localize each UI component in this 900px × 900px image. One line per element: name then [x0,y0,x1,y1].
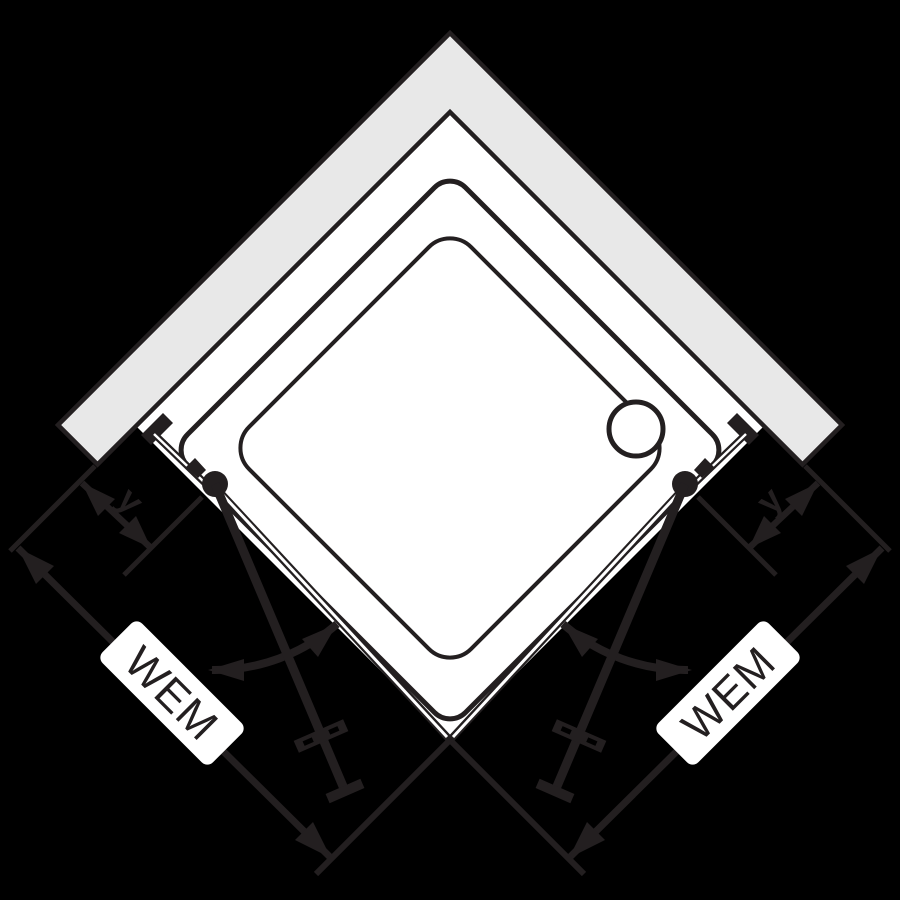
diagram-stage: WEM WEM y y [0,0,900,900]
drain-circle-icon [609,402,663,456]
shower-enclosure-diagram: WEM WEM y y [0,0,900,900]
